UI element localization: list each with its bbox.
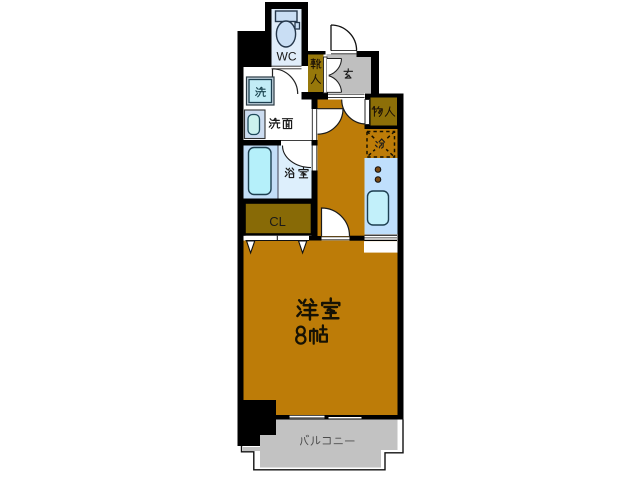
svg-text:WC: WC xyxy=(277,50,297,64)
svg-text:CL: CL xyxy=(269,214,286,229)
